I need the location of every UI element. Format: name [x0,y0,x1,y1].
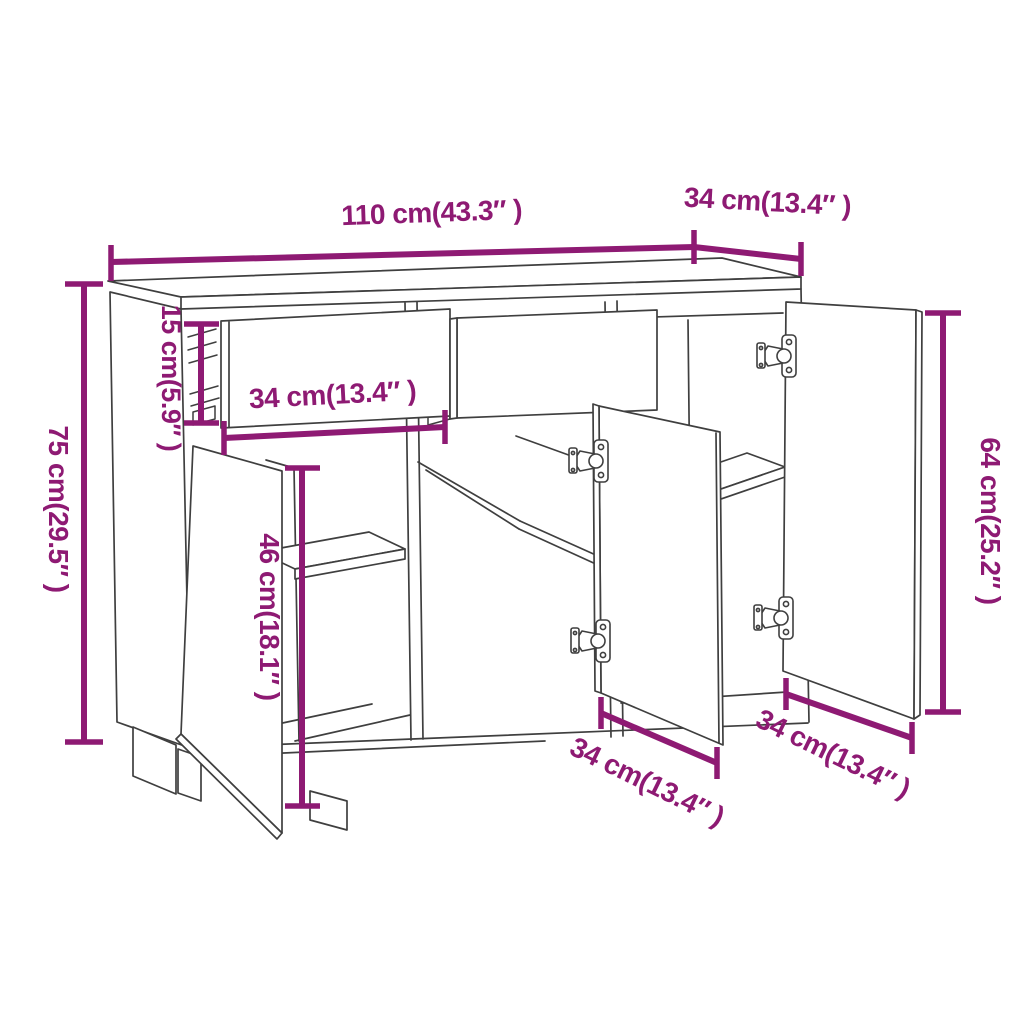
right-door [783,302,922,719]
overall-width-label: 110 cm(43.3″ ) [341,194,523,231]
overall-depth-label: 34 cm(13.4″ ) [683,182,852,222]
middle-drawer [450,310,657,419]
left-bay-floor [295,715,410,741]
hinge-icon [754,597,793,639]
diagram-stage: 110 cm(43.3″ ) 34 cm(13.4″ ) 75 cm(29.5″… [0,0,1024,1024]
middle-door [593,404,723,745]
middle-drawer-edge [450,318,457,419]
overall-height-label: 75 cm(29.5″ ) [43,425,74,592]
foot-middle [310,791,347,830]
right-door-width-label: 34 cm(13.4″ ) [751,703,915,804]
middle-drawer-front [457,310,657,418]
hinge-icon [569,440,608,482]
hinge-icon [571,620,610,662]
dim-door-height-line [925,313,961,712]
hinge-icon [757,335,796,377]
middle-door-width-label: 34 cm(13.4″ ) [565,731,729,832]
door-height-label: 64 cm(25.2″ ) [975,437,1006,604]
left-bay-inner-wall [294,468,299,741]
dim-interior-height-line [285,468,320,806]
right-door-face [783,302,916,719]
right-door-outer-edge [914,310,922,719]
drawer-height-label: 15 cm(5.9″ ) [156,305,186,452]
sideboard-dimension-diagram: 110 cm(43.3″ ) 34 cm(13.4″ ) 75 cm(29.5″… [0,0,1024,1024]
middle-door-face [599,406,723,745]
interior-height-label: 46 cm(18.1″ ) [254,533,285,700]
